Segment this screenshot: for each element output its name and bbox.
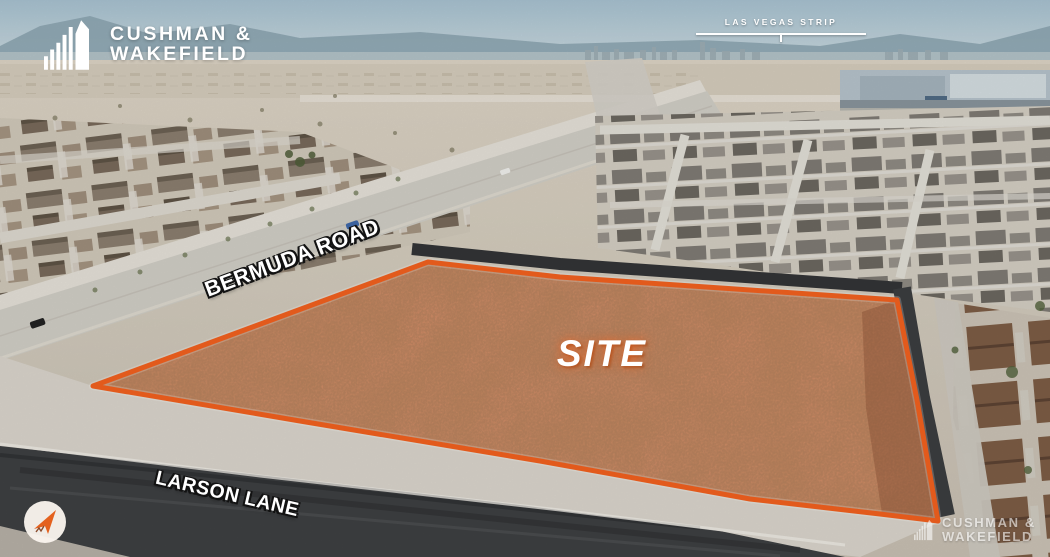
strip-callout-tick <box>780 35 782 42</box>
strip-callout-label: LAS VEGAS STRIP <box>696 17 866 27</box>
logo-line2: WAKEFIELD <box>110 45 253 65</box>
watermark-line1: CUSHMAN & <box>942 516 1036 530</box>
company-logo: CUSHMAN & WAKEFIELD <box>44 18 253 72</box>
aerial-marketing-image: CUSHMAN & WAKEFIELD LAS VEGAS STRIP BERM… <box>0 0 1050 557</box>
watermark-buildings-icon <box>914 518 936 542</box>
las-vegas-strip-callout: LAS VEGAS STRIP <box>696 17 866 42</box>
compass <box>22 499 68 545</box>
site-label: SITE <box>544 333 660 375</box>
north-arrow-icon <box>22 499 68 545</box>
cushman-wakefield-buildings-icon <box>44 18 98 72</box>
watermark-line2: WAKEFIELD <box>942 530 1036 544</box>
watermark: CUSHMAN & WAKEFIELD <box>914 516 1036 543</box>
